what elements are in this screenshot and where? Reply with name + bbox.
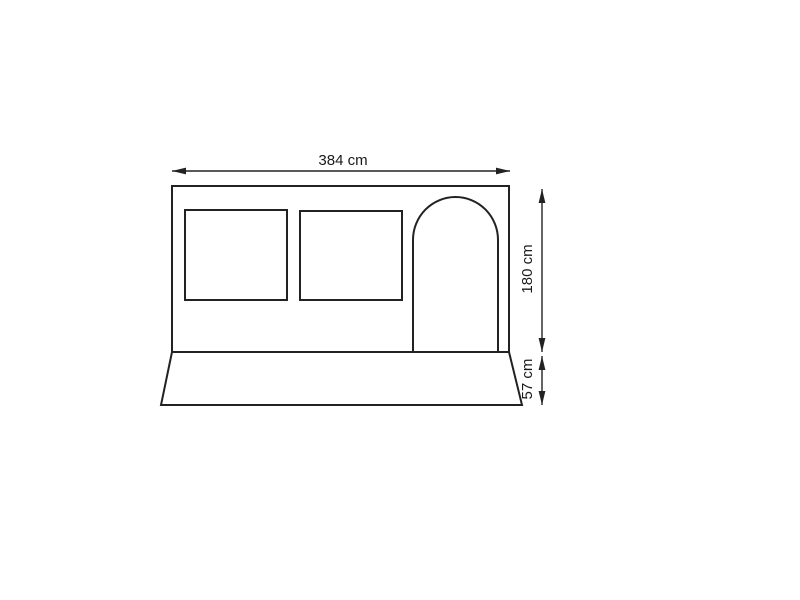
arrow-left-icon <box>172 168 186 175</box>
arrow-up-icon <box>539 356 546 370</box>
skirt-panel <box>161 352 522 405</box>
height-label: 180 cm <box>519 244 536 293</box>
arrow-right-icon <box>496 168 510 175</box>
window-right <box>300 211 402 300</box>
skirt-dimension: 57 cm <box>519 356 545 405</box>
window-left <box>185 210 287 300</box>
awning-wall-dimension-diagram: 384 cm 180 cm 57 cm <box>0 0 800 600</box>
width-label: 384 cm <box>318 152 367 169</box>
height-dimension: 180 cm <box>519 189 545 352</box>
skirt-label: 57 cm <box>519 359 536 400</box>
arrow-down-icon <box>539 338 546 352</box>
arrow-up-icon <box>539 189 546 203</box>
arrow-down-icon <box>539 391 546 405</box>
width-dimension: 384 cm <box>172 152 510 174</box>
diagram-canvas: 384 cm 180 cm 57 cm <box>0 0 800 600</box>
